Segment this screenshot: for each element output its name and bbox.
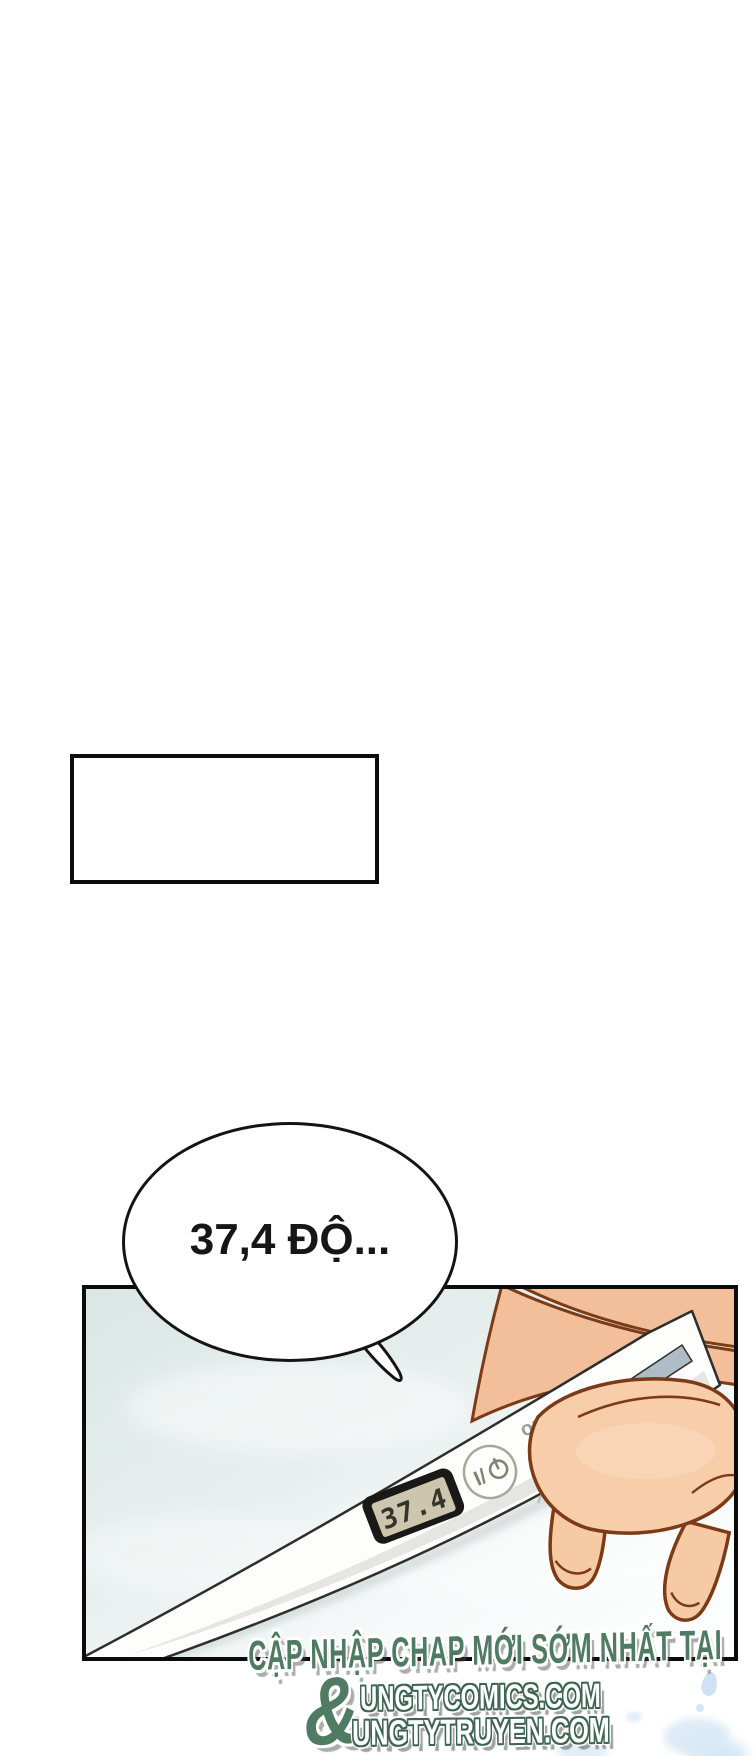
decor-blob xyxy=(626,1712,642,1722)
decor-droplet xyxy=(700,1671,719,1697)
thumb xyxy=(530,1379,734,1533)
comic-page: 37.4 I/ omR xyxy=(0,0,756,1756)
speech-bubble: 37,4 ĐỘ... xyxy=(122,1122,458,1362)
watermark-site2: UNGTYTRUYEN.COM xyxy=(352,1711,610,1754)
decor-dot xyxy=(696,1704,704,1712)
decor-blob xyxy=(688,1740,748,1756)
speech-bubble-text: 37,4 ĐỘ... xyxy=(190,1215,391,1265)
empty-caption-box xyxy=(70,754,379,884)
